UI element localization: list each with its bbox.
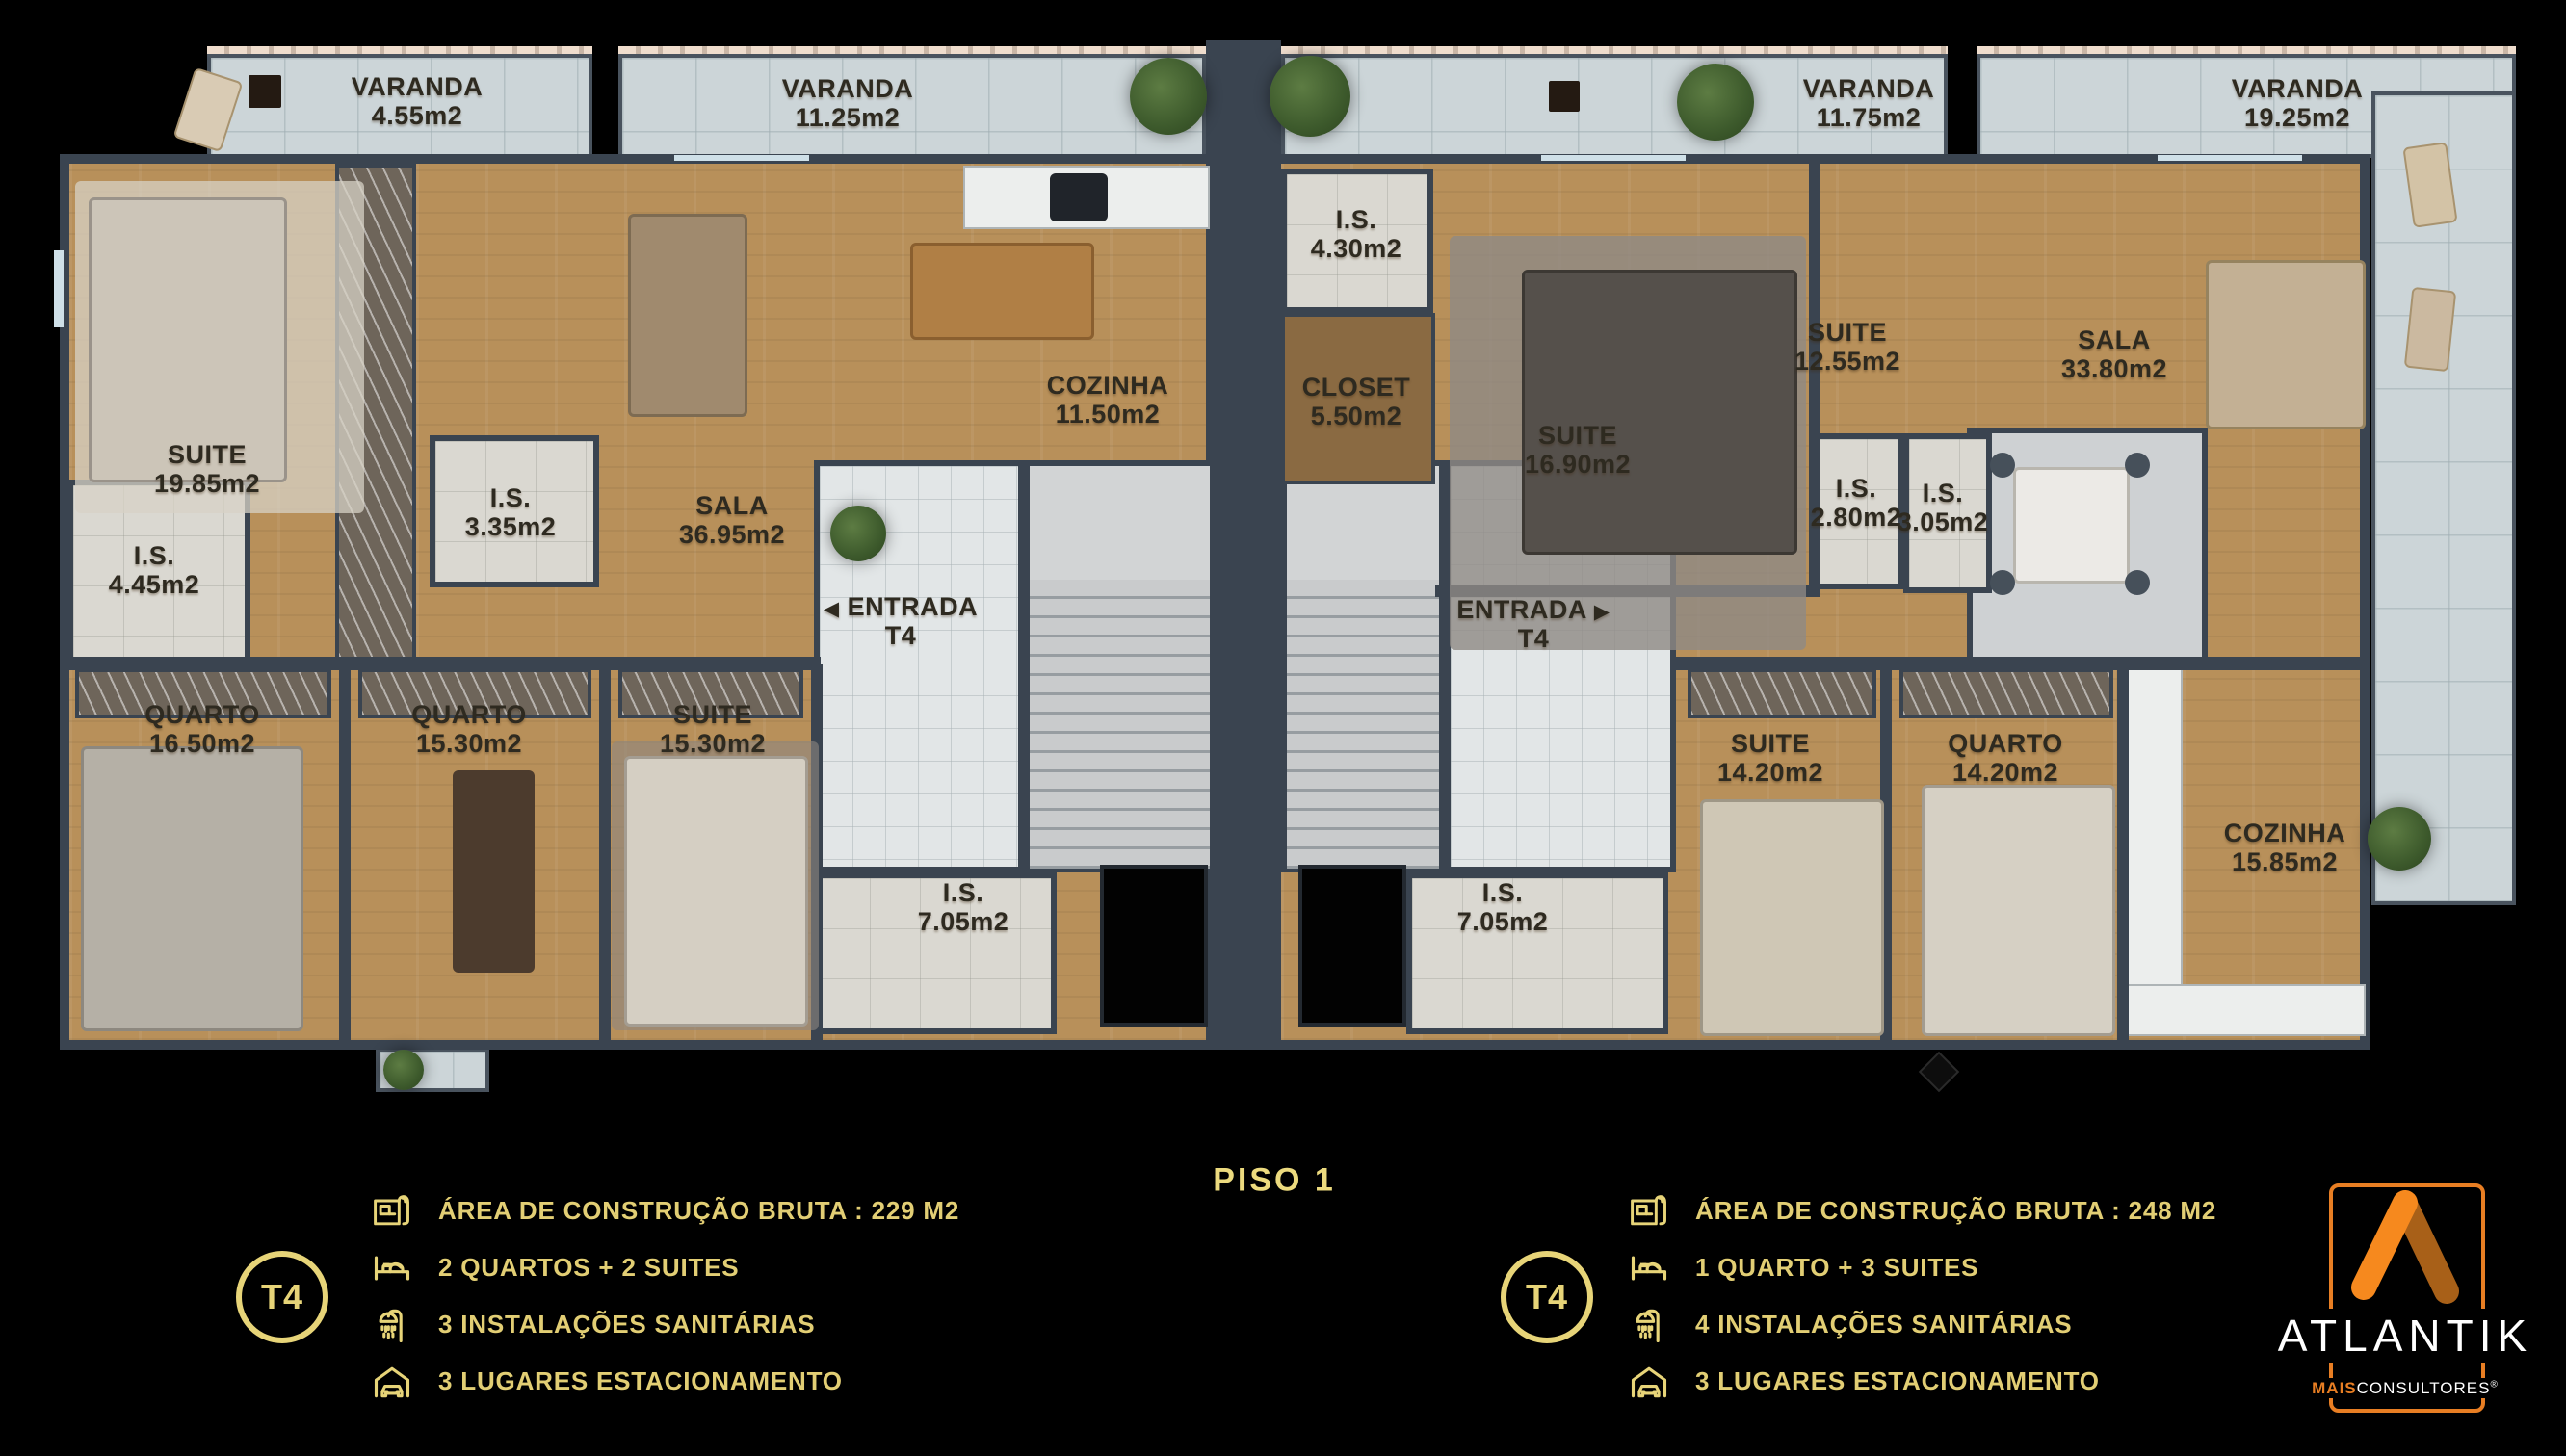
side-table xyxy=(249,75,281,108)
room-label-cozinha-1585: COZINHA15.85m2 xyxy=(2224,819,2346,876)
dining-table xyxy=(2013,467,2130,584)
chair xyxy=(2125,570,2150,595)
desk xyxy=(453,770,535,973)
entrance-arrow-icon: ▶ xyxy=(1594,600,1610,623)
room-label-quarto-1530: QUARTO15.30m2 xyxy=(411,700,527,758)
stairwell-right xyxy=(1281,460,1445,872)
plant xyxy=(1130,58,1207,135)
lounger xyxy=(2404,287,2457,372)
room-label-is-705-right: I.S.7.05m2 xyxy=(1457,878,1549,936)
room-label-quarto-1420: QUARTO14.20m2 xyxy=(1948,729,2063,787)
legend-left: ÁREA DE CONSTRUÇÃO BRUTA : 229 M2 2 QUAR… xyxy=(371,1183,959,1410)
bed xyxy=(1922,785,2115,1036)
blueprint-icon xyxy=(1628,1190,1670,1233)
balcony-railing xyxy=(1281,46,1948,54)
room-label-sala-3695: SALA36.95m2 xyxy=(679,491,785,549)
room-label-is-705-left: I.S.7.05m2 xyxy=(918,878,1009,936)
window xyxy=(54,250,64,327)
floor-title: PISO 1 xyxy=(1213,1162,1336,1200)
plant xyxy=(1270,56,1350,137)
unit-badge-right: T4 xyxy=(1501,1251,1593,1343)
side-table xyxy=(1549,81,1580,112)
garage-icon xyxy=(1628,1361,1670,1403)
balcony-railing xyxy=(207,46,592,54)
stairs xyxy=(1030,580,1210,869)
legend-label: ÁREA DE CONSTRUÇÃO BRUTA : 229 M2 xyxy=(438,1196,959,1226)
room-label-varanda-2: VARANDA11.25m2 xyxy=(782,74,914,132)
room-label-suite-1690: SUITE16.90m2 xyxy=(1525,421,1631,479)
garage-icon xyxy=(371,1361,413,1403)
room-label-suite-1420: SUITE14.20m2 xyxy=(1717,729,1823,787)
legend-label: 4 INSTALAÇÕES SANITÁRIAS xyxy=(1695,1310,2072,1339)
stairwell-left xyxy=(1024,460,1216,872)
wall xyxy=(1674,657,2370,670)
tagline-bold: MAIS xyxy=(2312,1379,2357,1397)
bed xyxy=(1522,270,1797,555)
room-label-sala-3380: SALA33.80m2 xyxy=(2061,325,2167,383)
legend-right: ÁREA DE CONSTRUÇÃO BRUTA : 248 M2 1 QUAR… xyxy=(1628,1183,2216,1410)
legend-row: 3 INSTALAÇÕES SANITÁRIAS xyxy=(371,1296,959,1353)
bed xyxy=(81,746,303,1031)
brand-logo-chevron-icon xyxy=(2329,1183,2477,1318)
room-label-cozinha-1150: COZINHA11.50m2 xyxy=(1047,371,1169,429)
tagline-normal: CONSULTORES xyxy=(2357,1379,2491,1397)
brand-tagline: MAISCONSULTORES® xyxy=(2254,1379,2556,1398)
legend-label: 3 INSTALAÇÕES SANITÁRIAS xyxy=(438,1310,815,1339)
legend-label: 2 QUARTOS + 2 SUITES xyxy=(438,1253,739,1283)
kitchen-counter xyxy=(2127,668,2183,986)
bed xyxy=(624,756,808,1027)
legend-row: 3 LUGARES ESTACIONAMENTO xyxy=(1628,1353,2216,1410)
legend-row: ÁREA DE CONSTRUÇÃO BRUTA : 248 M2 xyxy=(1628,1183,2216,1239)
floorplan-page: VARANDA4.55m2 VARANDA11.25m2 VARANDA11.7… xyxy=(0,0,2566,1456)
balcony-railing xyxy=(1977,46,2516,54)
room-label-varanda-3: VARANDA11.75m2 xyxy=(1803,74,1935,132)
window xyxy=(1541,155,1686,161)
blueprint-icon xyxy=(371,1190,413,1233)
room-label-suite-1985: SUITE19.85m2 xyxy=(154,440,260,498)
room-label-is-335: I.S.3.35m2 xyxy=(465,483,557,541)
legend-row: 2 QUARTOS + 2 SUITES xyxy=(371,1239,959,1296)
wall xyxy=(2117,664,2129,1046)
plant xyxy=(383,1050,424,1090)
room-label-closet-550: CLOSET5.50m2 xyxy=(1302,373,1411,430)
wardrobe xyxy=(1688,668,1876,718)
wall xyxy=(339,664,351,1046)
window xyxy=(674,155,809,161)
room-label-varanda-4: VARANDA19.25m2 xyxy=(2232,74,2364,132)
sofa xyxy=(628,214,747,417)
window xyxy=(2158,155,2302,161)
legend-label: 3 LUGARES ESTACIONAMENTO xyxy=(1695,1366,2100,1396)
cube-marker-icon xyxy=(1919,1052,1959,1092)
unit-badge-left: T4 xyxy=(236,1251,328,1343)
room-label-suite-1255: SUITE12.55m2 xyxy=(1794,318,1900,376)
dining-table xyxy=(910,243,1094,340)
stairs xyxy=(1287,580,1439,869)
room-label-quarto-1650: QUARTO16.50m2 xyxy=(144,700,260,758)
room-label-suite-1530: SUITE15.30m2 xyxy=(660,700,766,758)
legend-label: ÁREA DE CONSTRUÇÃO BRUTA : 248 M2 xyxy=(1695,1196,2216,1226)
entrance-arrow-icon: ◀ xyxy=(824,597,840,620)
chair xyxy=(1990,453,2015,478)
chair xyxy=(2125,453,2150,478)
room-label-entrada-left: ◀ ENTRADA T4 xyxy=(824,592,978,650)
legend-row: 4 INSTALAÇÕES SANITÁRIAS xyxy=(1628,1296,2216,1353)
cooktop xyxy=(1050,173,1108,221)
wall xyxy=(599,664,611,1046)
room-label-is-445: I.S.4.45m2 xyxy=(109,541,200,599)
wall xyxy=(60,657,821,670)
shaft-void-right xyxy=(1298,865,1406,1027)
chair xyxy=(1990,570,2015,595)
room-label-entrada-right: ENTRADA ▶ T4 xyxy=(1456,595,1610,653)
plant xyxy=(830,506,886,561)
room-label-varanda-1: VARANDA4.55m2 xyxy=(352,72,484,130)
bed-icon xyxy=(1628,1247,1670,1289)
legend-row: ÁREA DE CONSTRUÇÃO BRUTA : 229 M2 xyxy=(371,1183,959,1239)
brand-name: ATLANTIK xyxy=(2254,1310,2556,1362)
sofa xyxy=(2206,260,2366,429)
wardrobe xyxy=(1899,668,2113,718)
plant xyxy=(1677,64,1754,141)
room-label-is-430: I.S.4.30m2 xyxy=(1311,205,1402,263)
shaft-void-left xyxy=(1100,865,1208,1027)
shower-icon xyxy=(371,1304,413,1346)
central-wall xyxy=(1216,40,1271,1050)
legend-label: 1 QUARTO + 3 SUITES xyxy=(1695,1253,1978,1283)
bed-icon xyxy=(371,1247,413,1289)
legend-label: 3 LUGARES ESTACIONAMENTO xyxy=(438,1366,843,1396)
shower-icon xyxy=(1628,1304,1670,1346)
room-label-is-305: I.S.3.05m2 xyxy=(1898,479,1989,536)
registered-mark: ® xyxy=(2490,1379,2498,1390)
plant xyxy=(2368,807,2431,871)
legend-row: 1 QUARTO + 3 SUITES xyxy=(1628,1239,2216,1296)
legend-row: 3 LUGARES ESTACIONAMENTO xyxy=(371,1353,959,1410)
kitchen-cabinets xyxy=(2127,984,2366,1036)
room-label-is-280: I.S.2.80m2 xyxy=(1811,474,1902,532)
balcony-railing xyxy=(618,46,1206,54)
bed xyxy=(1700,799,1884,1036)
